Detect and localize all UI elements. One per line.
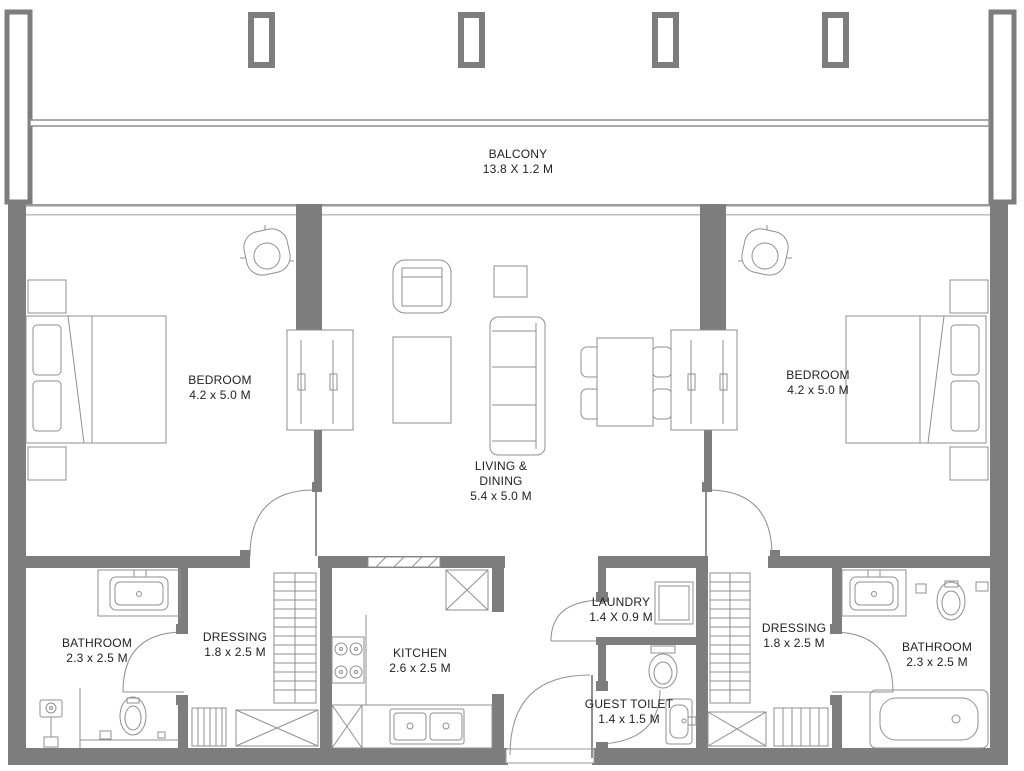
wall-bedroom-right <box>700 204 726 330</box>
room-name: KITCHEN <box>389 646 451 661</box>
room-name: BATHROOM <box>62 636 132 651</box>
door-jamb <box>312 482 322 492</box>
wall-outer-bottom <box>592 748 1008 765</box>
fridge-icon <box>446 570 488 610</box>
room-dims: 1.8 x 2.5 M <box>762 636 826 651</box>
room-dims: 1.4 X 0.9 M <box>589 610 653 625</box>
room-name: DINING <box>470 474 532 489</box>
room-dims: 2.3 x 2.5 M <box>62 651 132 666</box>
sliding-wardrobe-icon <box>287 330 353 430</box>
label-bedroom-left: BEDROOM 4.2 x 5.0 M <box>188 373 251 403</box>
bed-icon <box>846 316 986 443</box>
door-jamb <box>240 550 250 564</box>
faucet-icon <box>868 570 880 577</box>
counter <box>362 705 492 748</box>
door-jamb <box>830 695 842 705</box>
label-bathroom-left: BATHROOM 2.3 x 2.5 M <box>62 636 132 666</box>
door-jamb <box>770 550 780 564</box>
facade-column <box>251 15 272 65</box>
room-dims: 1.8 x 2.5 M <box>203 645 267 660</box>
shoe-rack-icon <box>192 708 226 746</box>
wall-outer-bottom <box>8 748 508 765</box>
toilet-icon <box>649 646 677 688</box>
wall-outer-right <box>990 202 1008 765</box>
wall-bedroom-left <box>296 204 322 330</box>
room-name: DRESSING <box>762 621 826 636</box>
chair-icon <box>240 225 294 278</box>
bath-accessory <box>916 584 926 593</box>
room-dims: 2.3 x 2.5 M <box>902 655 972 670</box>
faucet-icon <box>134 570 146 577</box>
kitchen-sink-icon <box>390 709 464 744</box>
label-dressing-right: DRESSING 1.8 x 2.5 M <box>762 621 826 651</box>
corner-pillar-right <box>991 12 1014 202</box>
sink-drain <box>137 592 142 597</box>
nightstand-icon <box>950 447 988 480</box>
balcony-railing <box>30 120 989 126</box>
corner-pillar-left <box>7 12 30 202</box>
wall-service <box>598 556 698 568</box>
label-bathroom-right: BATHROOM 2.3 x 2.5 M <box>902 640 972 670</box>
label-kitchen: KITCHEN 2.6 x 2.5 M <box>389 646 451 676</box>
glass-wall-line <box>26 214 990 216</box>
laundry-fixtures <box>655 582 693 624</box>
coffee-table-icon <box>393 337 451 423</box>
label-balcony: BALCONY 13.8 X 1.2 M <box>483 147 553 177</box>
facade-column <box>655 15 676 65</box>
side-table-icon <box>494 266 527 297</box>
door-jamb <box>176 624 188 634</box>
label-living-dining: LIVING & DINING 5.4 x 5.0 M <box>470 459 532 504</box>
hanging-rail-icon <box>274 573 316 703</box>
door-jamb <box>176 695 188 705</box>
closet-icon <box>236 710 318 746</box>
dining-table-icon <box>581 338 672 426</box>
wall-outer-left <box>8 202 26 765</box>
chair-icon <box>738 225 792 278</box>
nightstand-icon <box>28 447 66 480</box>
room-name: BALCONY <box>483 147 553 162</box>
label-bedroom-right: BEDROOM 4.2 x 5.0 M <box>786 368 849 398</box>
room-name: DRESSING <box>203 630 267 645</box>
room-dims: 4.2 x 5.0 M <box>188 388 251 403</box>
room-name: BATHROOM <box>902 640 972 655</box>
nightstand-icon <box>950 280 988 313</box>
wall-kitchen-right <box>492 694 504 748</box>
living-dining-furniture <box>393 260 672 455</box>
room-dims: 2.6 x 2.5 M <box>389 661 451 676</box>
room-name: LIVING & <box>470 459 532 474</box>
room-dims: 4.2 x 5.0 M <box>786 383 849 398</box>
bath-accessory <box>976 582 988 591</box>
entry-door-arc <box>510 675 590 755</box>
balcony-structure <box>7 12 1014 216</box>
room-dims: 1.4 x 1.5 M <box>585 712 673 727</box>
wall-service <box>26 556 250 568</box>
room-name: LAUNDRY <box>589 595 653 610</box>
nightstand-icon <box>28 280 66 313</box>
door-jamb <box>596 681 608 691</box>
wall-hall <box>598 641 606 687</box>
guest-toilet-fixtures <box>649 646 696 744</box>
room-dims: 5.4 x 5.0 M <box>470 489 532 504</box>
bed-icon <box>26 316 166 443</box>
toilet-icon <box>937 581 965 620</box>
hanging-rail-icon <box>710 573 750 703</box>
label-laundry: LAUNDRY 1.4 X 0.9 M <box>589 595 653 625</box>
door-arc <box>250 490 314 556</box>
door-jamb <box>596 637 608 645</box>
glass-wall-line <box>26 204 990 207</box>
entry-threshold <box>506 749 594 763</box>
wall-service <box>768 556 990 568</box>
door-arc <box>832 632 893 692</box>
wall-dressing-right <box>696 556 708 748</box>
label-dressing-left: DRESSING 1.8 x 2.5 M <box>203 630 267 660</box>
door-arc <box>123 632 184 692</box>
room-name: GUEST TOILET <box>585 697 673 712</box>
sliding-wardrobe-icon <box>671 330 737 430</box>
dining-chair-icon <box>652 389 672 419</box>
sink-icon <box>855 582 893 605</box>
armchair-icon <box>393 260 451 313</box>
floor-plan-canvas <box>0 0 1024 771</box>
toilet-icon <box>120 697 146 735</box>
facade-column <box>461 15 482 65</box>
facade-column <box>825 15 846 65</box>
washing-machine-icon <box>655 582 693 624</box>
wall-kitchen-left <box>320 568 332 748</box>
sofa-icon <box>490 317 545 455</box>
washing-machine-icon <box>659 586 689 620</box>
closet-icon <box>708 712 766 746</box>
floor-plan: BALCONY 13.8 X 1.2 M BEDROOM 4.2 x 5.0 M… <box>0 0 1024 771</box>
door-jamb <box>596 742 608 750</box>
door-arc <box>708 490 772 556</box>
door-jamb <box>702 482 712 492</box>
sink-icon <box>115 582 163 605</box>
room-dims: 13.8 X 1.2 M <box>483 162 553 177</box>
wall-laundry-toilet <box>606 637 698 645</box>
base-cabinet-icon <box>332 705 362 748</box>
shower-icon <box>40 688 80 748</box>
sink-drain <box>872 592 877 597</box>
shoe-rack-icon <box>774 708 828 746</box>
bathtub-icon <box>870 690 988 748</box>
dressing-right-fixtures <box>708 573 828 746</box>
wall-kitchen-right <box>492 568 504 612</box>
stove-icon <box>332 637 364 683</box>
bath-accessory <box>158 732 165 738</box>
room-name: BEDROOM <box>188 373 251 388</box>
room-name: BEDROOM <box>786 368 849 383</box>
bath-accessory <box>100 731 111 739</box>
dining-chair-icon <box>652 347 672 377</box>
upper-cabinet-icon <box>368 557 440 567</box>
door-jamb <box>830 624 842 634</box>
label-guest-toilet: GUEST TOILET 1.4 x 1.5 M <box>585 697 673 727</box>
